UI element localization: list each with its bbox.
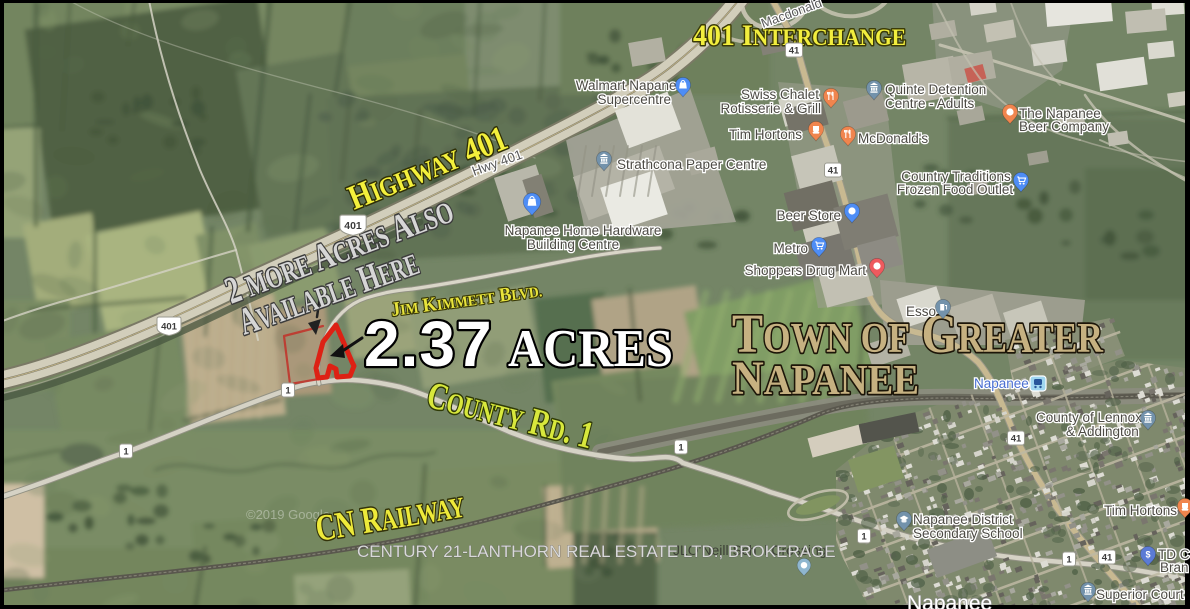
svg-text:$: $ <box>1145 550 1150 560</box>
svg-text:Esso: Esso <box>906 304 936 319</box>
svg-text:Metro: Metro <box>773 241 808 256</box>
svg-text:1: 1 <box>678 443 684 454</box>
svg-text:CENTURY 21-LANTHORN REAL ESTAT: CENTURY 21-LANTHORN REAL ESTATE LTD., BR… <box>357 542 836 561</box>
svg-text:Napanee District: Napanee District <box>913 512 1013 527</box>
svg-text:McDonald's: McDonald's <box>858 131 928 146</box>
svg-text:Napanee Home Hardware: Napanee Home Hardware <box>505 223 662 238</box>
svg-text:Bran: Bran <box>1160 560 1189 575</box>
svg-text:1: 1 <box>285 386 291 397</box>
svg-text:Building Centre: Building Centre <box>527 237 619 252</box>
svg-text:Napanee: Napanee <box>907 592 992 609</box>
svg-text:Swiss Chalet: Swiss Chalet <box>741 87 819 102</box>
svg-text:1: 1 <box>861 532 867 543</box>
svg-text:Centre - Adults: Centre - Adults <box>885 96 975 111</box>
svg-text:1: 1 <box>1066 555 1072 566</box>
svg-text:Beer Store: Beer Store <box>776 208 841 223</box>
svg-text:Strathcona Paper Centre: Strathcona Paper Centre <box>617 157 766 172</box>
svg-text:401: 401 <box>161 322 178 333</box>
svg-text:& Addington: & Addington <box>1066 424 1139 439</box>
svg-text:Beer Company: Beer Company <box>1019 119 1109 134</box>
svg-text:ACRES: ACRES <box>508 320 673 378</box>
svg-text:Superior Court: Superior Court <box>1096 587 1184 602</box>
svg-text:41: 41 <box>789 46 800 57</box>
svg-text:41: 41 <box>1102 553 1113 564</box>
svg-text:Tim Hortons: Tim Hortons <box>1104 503 1177 518</box>
svg-text:41: 41 <box>1011 434 1022 445</box>
svg-text:Frozen Food Outlet: Frozen Food Outlet <box>897 182 1014 197</box>
svg-text:1: 1 <box>123 447 129 458</box>
svg-text:Tim Hortons: Tim Hortons <box>729 127 802 142</box>
svg-text:2.37: 2.37 <box>364 308 493 380</box>
svg-text:County of Lennox: County of Lennox <box>1036 410 1142 425</box>
svg-text:Shoppers Drug Mart: Shoppers Drug Mart <box>744 263 866 278</box>
svg-text:41: 41 <box>828 166 839 177</box>
svg-text:Quinte Detention: Quinte Detention <box>885 82 986 97</box>
svg-text:Walmart Napanee: Walmart Napanee <box>576 78 684 93</box>
svg-text:Secondary School: Secondary School <box>913 526 1023 541</box>
svg-text:Supercentre: Supercentre <box>597 92 671 107</box>
svg-text:NAPANEE: NAPANEE <box>732 352 919 405</box>
svg-text:401: 401 <box>344 221 362 232</box>
svg-text:Rotisserie & Grill: Rotisserie & Grill <box>720 101 821 116</box>
svg-text:Napanee: Napanee <box>974 376 1029 391</box>
